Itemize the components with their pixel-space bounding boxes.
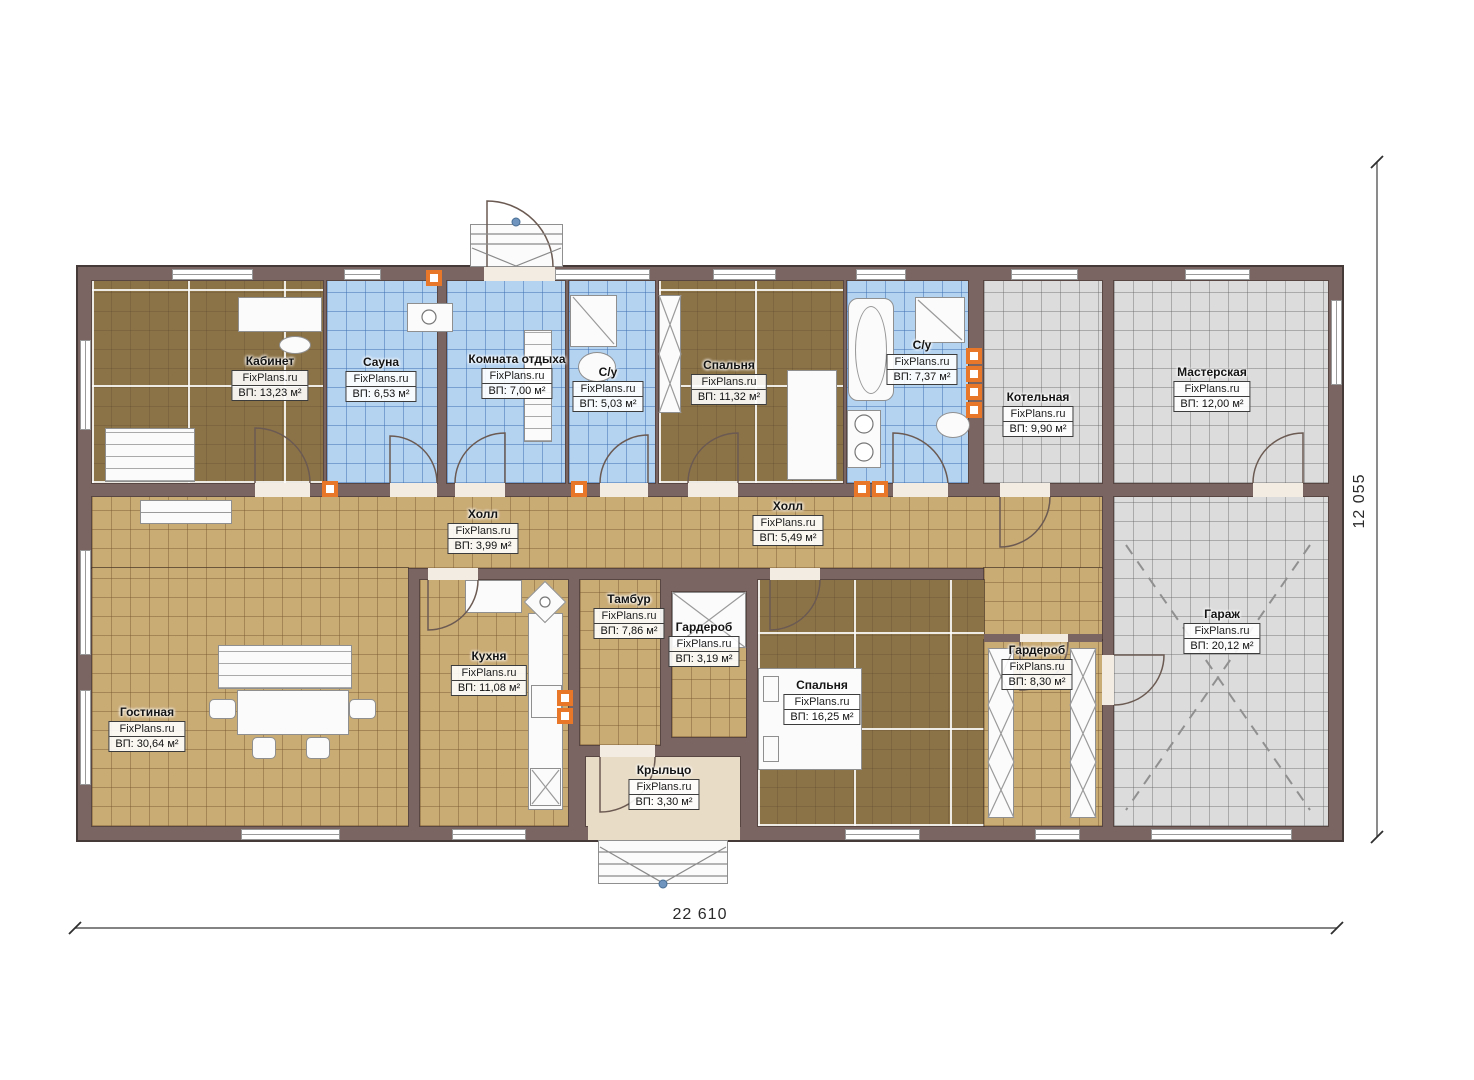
room-label-garderob-1: Гардероб FixPlans.ru ВП: 3,19 м² xyxy=(668,620,739,667)
window xyxy=(241,829,340,840)
vent-marker xyxy=(557,690,573,706)
window xyxy=(713,269,776,280)
window xyxy=(80,340,91,430)
room-info-box: FixPlans.ru ВП: 13,23 м² xyxy=(231,370,308,401)
window xyxy=(856,269,906,280)
room-area: ВП: 30,64 м² xyxy=(109,737,184,751)
living-sofa xyxy=(218,645,352,689)
room-name: Гардероб xyxy=(668,620,739,634)
bathtub-basin xyxy=(855,306,887,394)
room-label-kuhnya: Кухня FixPlans.ru ВП: 11,08 м² xyxy=(451,649,527,696)
room-label-su-1: С/у FixPlans.ru ВП: 5,03 м² xyxy=(572,365,643,412)
room-info-box: FixPlans.ru ВП: 16,25 м² xyxy=(783,694,860,725)
room-name: Крыльцо xyxy=(628,763,699,777)
room-area: ВП: 12,00 м² xyxy=(1174,397,1249,411)
dining-chair xyxy=(252,737,276,759)
room-name: Сауна xyxy=(345,355,416,369)
watermark-text: FixPlans.ru xyxy=(448,524,517,539)
room-name: Гараж xyxy=(1183,607,1260,621)
door-opening xyxy=(770,568,820,580)
room-name: Котельная xyxy=(1002,390,1073,404)
room-name: Кухня xyxy=(451,649,527,663)
vent-marker xyxy=(966,402,982,418)
shower-tray xyxy=(570,295,617,347)
room-floor-kotelnaya xyxy=(984,281,1102,483)
room-name: Спальня xyxy=(691,358,767,372)
door-opening xyxy=(428,568,478,580)
room-label-kotelnaya: Котельная FixPlans.ru ВП: 9,90 м² xyxy=(1002,390,1073,437)
watermark-text: FixPlans.ru xyxy=(1003,407,1072,422)
window xyxy=(845,829,920,840)
room-area: ВП: 16,25 м² xyxy=(784,710,859,724)
room-area: ВП: 11,32 м² xyxy=(692,390,766,404)
watermark-text: FixPlans.ru xyxy=(482,369,551,384)
room-info-box: FixPlans.ru ВП: 30,64 м² xyxy=(108,721,185,752)
kitchen-counter xyxy=(465,580,522,613)
room-name: Тамбур xyxy=(593,592,664,606)
room-info-box: FixPlans.ru ВП: 9,90 м² xyxy=(1002,406,1073,437)
room-area: ВП: 5,49 м² xyxy=(753,531,822,545)
vent-marker xyxy=(854,481,870,497)
room-info-box: FixPlans.ru ВП: 11,08 м² xyxy=(451,665,527,696)
room-area: ВП: 3,19 м² xyxy=(669,652,738,666)
room-area: ВП: 3,30 м² xyxy=(629,795,698,809)
room-info-box: FixPlans.ru ВП: 20,12 м² xyxy=(1183,623,1260,654)
window xyxy=(1185,269,1250,280)
room-info-box: FixPlans.ru ВП: 7,00 м² xyxy=(481,368,552,399)
door-opening xyxy=(688,483,738,497)
room-info-box: FixPlans.ru ВП: 7,37 м² xyxy=(886,354,957,385)
room-area: ВП: 7,86 м² xyxy=(594,624,663,638)
room-area: ВП: 20,12 м² xyxy=(1184,639,1259,653)
room-area: ВП: 3,99 м² xyxy=(448,539,517,553)
room-area: ВП: 7,00 м² xyxy=(482,384,551,398)
room-label-masterskaya: Мастерская FixPlans.ru ВП: 12,00 м² xyxy=(1173,365,1250,412)
room-name: С/у xyxy=(572,365,643,379)
watermark-text: FixPlans.ru xyxy=(692,375,766,390)
bed-pillow xyxy=(763,736,779,762)
dining-chair xyxy=(306,737,330,759)
room-name: Гостиная xyxy=(108,705,185,719)
bedroom1-bed xyxy=(787,370,837,480)
room-label-gostinaya: Гостиная FixPlans.ru ВП: 30,64 м² xyxy=(108,705,185,752)
vent-marker xyxy=(966,348,982,364)
door-opening xyxy=(484,267,555,281)
vent-marker xyxy=(557,708,573,724)
room-info-box: FixPlans.ru ВП: 5,49 м² xyxy=(752,515,823,546)
room-area: ВП: 5,03 м² xyxy=(573,397,642,411)
window xyxy=(452,829,526,840)
porch-opening xyxy=(588,826,740,840)
room-label-holl-2: Холл FixPlans.ru ВП: 5,49 м² xyxy=(752,499,823,546)
watermark-text: FixPlans.ru xyxy=(784,695,859,710)
hall-radiator xyxy=(140,500,232,524)
vent-marker xyxy=(966,384,982,400)
room-area: ВП: 11,08 м² xyxy=(452,681,526,695)
window xyxy=(1035,829,1080,840)
room-floor-holl xyxy=(92,497,1102,568)
watermark-text: FixPlans.ru xyxy=(887,355,956,370)
room-area: ВП: 7,37 м² xyxy=(887,370,956,384)
room-label-holl-1: Холл FixPlans.ru ВП: 3,99 м² xyxy=(447,507,518,554)
door-opening xyxy=(600,483,648,497)
room-label-kabinet: Кабинет FixPlans.ru ВП: 13,23 м² xyxy=(231,354,308,401)
watermark-text: FixPlans.ru xyxy=(669,637,738,652)
room-info-box: FixPlans.ru ВП: 3,19 м² xyxy=(668,636,739,667)
watermark-text: FixPlans.ru xyxy=(1002,660,1071,675)
sauna-stove xyxy=(407,303,453,332)
dining-chair xyxy=(349,699,376,719)
window xyxy=(80,690,91,785)
dining-table xyxy=(237,690,349,735)
room-label-komnata-otdyha: Комната отдыха FixPlans.ru ВП: 7,00 м² xyxy=(468,352,565,399)
room-info-box: FixPlans.ru ВП: 8,30 м² xyxy=(1001,659,1072,690)
vent-marker xyxy=(966,366,982,382)
watermark-text: FixPlans.ru xyxy=(109,722,184,737)
bedroom1-wardrobe xyxy=(659,295,681,413)
room-label-tambur: Тамбур FixPlans.ru ВП: 7,86 м² xyxy=(593,592,664,639)
room-floor-garazh xyxy=(1114,497,1328,826)
room-label-sauna: Сауна FixPlans.ru ВП: 6,53 м² xyxy=(345,355,416,402)
office-chair xyxy=(279,336,311,354)
door-opening xyxy=(455,483,505,497)
wardrobe-column xyxy=(1070,648,1096,818)
door-opening xyxy=(255,483,310,497)
kitchen-cabinet xyxy=(530,768,561,806)
porch-steps xyxy=(598,840,728,884)
room-info-box: FixPlans.ru ВП: 6,53 м² xyxy=(345,371,416,402)
window xyxy=(80,550,91,655)
watermark-text: FixPlans.ru xyxy=(452,666,526,681)
door-opening xyxy=(1253,483,1303,497)
room-info-box: FixPlans.ru ВП: 11,32 м² xyxy=(691,374,767,405)
room-info-box: FixPlans.ru ВП: 3,30 м² xyxy=(628,779,699,810)
dimension-width: 22 610 xyxy=(673,906,728,924)
watermark-text: FixPlans.ru xyxy=(1184,624,1259,639)
room-name: Мастерская xyxy=(1173,365,1250,379)
watermark-text: FixPlans.ru xyxy=(573,382,642,397)
watermark-text: FixPlans.ru xyxy=(629,780,698,795)
window xyxy=(1331,300,1342,385)
room-label-garazh: Гараж FixPlans.ru ВП: 20,12 м² xyxy=(1183,607,1260,654)
floor-plan-canvas: Кабинет FixPlans.ru ВП: 13,23 м² Сауна F… xyxy=(0,0,1474,1080)
dimension-height: 12 055 xyxy=(1351,441,1369,561)
room-floor-holl-corridor xyxy=(984,568,1102,640)
room-label-spalnya-2: Спальня FixPlans.ru ВП: 16,25 м² xyxy=(783,678,860,725)
room-area: ВП: 8,30 м² xyxy=(1002,675,1071,689)
watermark-text: FixPlans.ru xyxy=(594,609,663,624)
office-sofa xyxy=(105,428,195,482)
entry-steps xyxy=(470,224,563,267)
window xyxy=(344,269,381,280)
window xyxy=(1011,269,1078,280)
watermark-text: FixPlans.ru xyxy=(753,516,822,531)
room-name: Гардероб xyxy=(1001,643,1072,657)
vent-marker xyxy=(322,481,338,497)
watermark-text: FixPlans.ru xyxy=(232,371,307,386)
door-opening xyxy=(893,483,948,497)
window xyxy=(172,269,253,280)
window xyxy=(555,269,650,280)
office-desk xyxy=(238,297,322,332)
room-info-box: FixPlans.ru ВП: 5,03 м² xyxy=(572,381,643,412)
room-area: ВП: 6,53 м² xyxy=(346,387,415,401)
room-info-box: FixPlans.ru ВП: 3,99 м² xyxy=(447,523,518,554)
room-label-spalnya-1: Спальня FixPlans.ru ВП: 11,32 м² xyxy=(691,358,767,405)
room-name: Холл xyxy=(447,507,518,521)
watermark-text: FixPlans.ru xyxy=(1174,382,1249,397)
room-name: С/у xyxy=(886,338,957,352)
corner-shower xyxy=(915,297,965,343)
room-info-box: FixPlans.ru ВП: 7,86 м² xyxy=(593,608,664,639)
vent-marker xyxy=(571,481,587,497)
door-opening xyxy=(1000,483,1050,497)
door-opening xyxy=(390,483,437,497)
toilet-2 xyxy=(936,412,970,438)
door-opening xyxy=(1102,655,1114,705)
room-label-su-2: С/у FixPlans.ru ВП: 7,37 м² xyxy=(886,338,957,385)
watermark-text: FixPlans.ru xyxy=(346,372,415,387)
room-info-box: FixPlans.ru ВП: 12,00 м² xyxy=(1173,381,1250,412)
room-label-kryltso: Крыльцо FixPlans.ru ВП: 3,30 м² xyxy=(628,763,699,810)
room-area: ВП: 9,90 м² xyxy=(1003,422,1072,436)
room-name: Спальня xyxy=(783,678,860,692)
room-name: Комната отдыха xyxy=(468,352,565,366)
double-sink xyxy=(847,410,881,468)
vent-marker xyxy=(426,270,442,286)
window xyxy=(1151,829,1292,840)
dining-chair xyxy=(209,699,236,719)
room-label-garderob-2: Гардероб FixPlans.ru ВП: 8,30 м² xyxy=(1001,643,1072,690)
room-name: Кабинет xyxy=(231,354,308,368)
door-opening xyxy=(600,745,655,757)
door-opening xyxy=(1020,634,1068,642)
bed-pillow xyxy=(763,676,779,702)
room-area: ВП: 13,23 м² xyxy=(232,386,307,400)
room-name: Холл xyxy=(752,499,823,513)
vent-marker xyxy=(872,481,888,497)
